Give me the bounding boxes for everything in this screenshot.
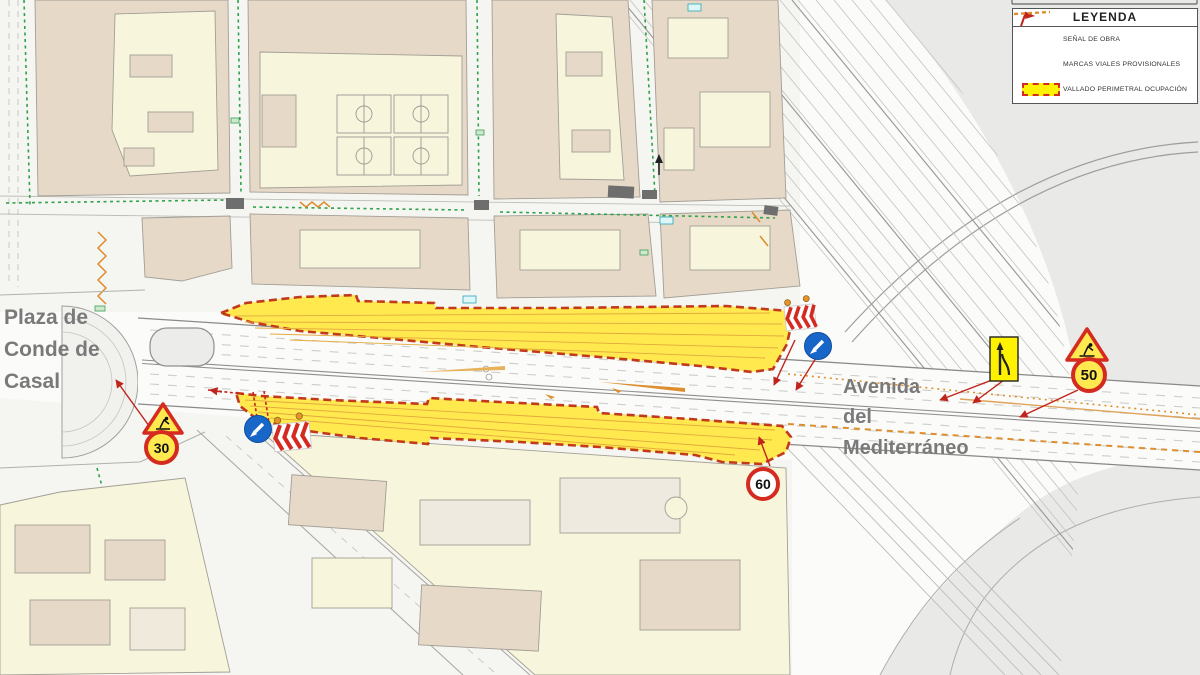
lane-merge-sign-icon [990, 337, 1018, 381]
city-blocks [35, 0, 786, 202]
yellow-zone-swatch-icon [1019, 83, 1063, 96]
blue-arrow-sign-icon-left [245, 416, 272, 443]
speed-limit-50-sign: 50 [1071, 357, 1107, 393]
speed-limit-50-value: 50 [1081, 367, 1098, 384]
legend-item-occupation-fence: VALLADO PERIMETRAL OCUPACIÓN [1013, 77, 1197, 102]
speed-limit-60-sign: 60 [746, 467, 780, 501]
speed-limit-30-sign: 30 [144, 430, 179, 465]
legend-item-label: VALLADO PERIMETRAL OCUPACIÓN [1063, 86, 1187, 93]
legend-box: LEYENDA SEÑAL DE OBRA MARCAS VIALES PROV… [1012, 8, 1198, 104]
blue-arrow-sign-icon-right [805, 333, 832, 360]
speed-limit-30-value: 30 [154, 440, 170, 456]
speed-limit-60-value: 60 [755, 476, 771, 492]
construction-plan-map: Plaza de Conde de Casal Avenida del Medi… [0, 0, 1200, 675]
legend-item-label: SEÑAL DE OBRA [1063, 36, 1120, 43]
legend-item-work-signal: SEÑAL DE OBRA [1013, 27, 1197, 52]
legend-item-label: MARCAS VIALES PROVISIONALES [1063, 61, 1180, 68]
legend-item-provisional-marks: MARCAS VIALES PROVISIONALES [1013, 52, 1197, 77]
